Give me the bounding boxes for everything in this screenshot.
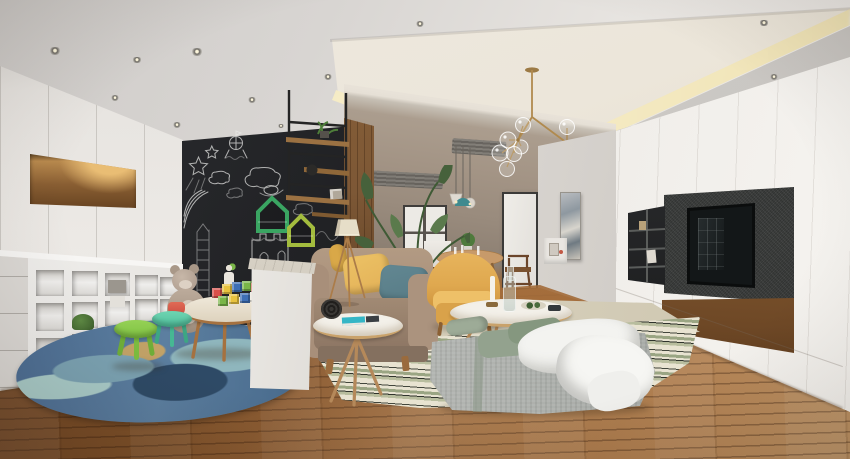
- shelf-divider: [646, 209, 648, 282]
- stool-teal: [152, 311, 192, 327]
- decor-basket: [321, 299, 342, 319]
- stool-shadow: [112, 362, 164, 371]
- shelf-decor: [646, 250, 656, 264]
- recessed-spotlight: [415, 21, 425, 27]
- stool-leg: [134, 336, 139, 360]
- niche-picture: [549, 243, 559, 256]
- decor-dish: [521, 301, 546, 310]
- niche-decor: [559, 250, 563, 254]
- toy-block: [218, 296, 228, 306]
- toy-block: [222, 284, 232, 294]
- hanging-shelf: [278, 88, 356, 222]
- stool-leg: [170, 326, 174, 347]
- alphabet-blocks: [0, 0, 280, 320]
- book-stack: [342, 316, 365, 325]
- stool-green: [114, 320, 158, 338]
- candle-holder: [486, 302, 498, 307]
- candle: [490, 276, 495, 304]
- recessed-spotlight: [769, 74, 779, 80]
- living-room-render: [0, 0, 850, 459]
- toy-block: [232, 282, 242, 292]
- toy-block: [240, 293, 250, 303]
- decor-tray: [548, 305, 561, 311]
- side-table-legs: [305, 330, 405, 410]
- recessed-spotlight: [323, 74, 333, 80]
- toy-block: [229, 294, 239, 304]
- recessed-spotlight: [758, 20, 770, 27]
- glass-bottle: [503, 276, 516, 312]
- screen-reflection: [698, 218, 724, 270]
- book: [366, 316, 379, 323]
- shelf-decor: [639, 221, 646, 230]
